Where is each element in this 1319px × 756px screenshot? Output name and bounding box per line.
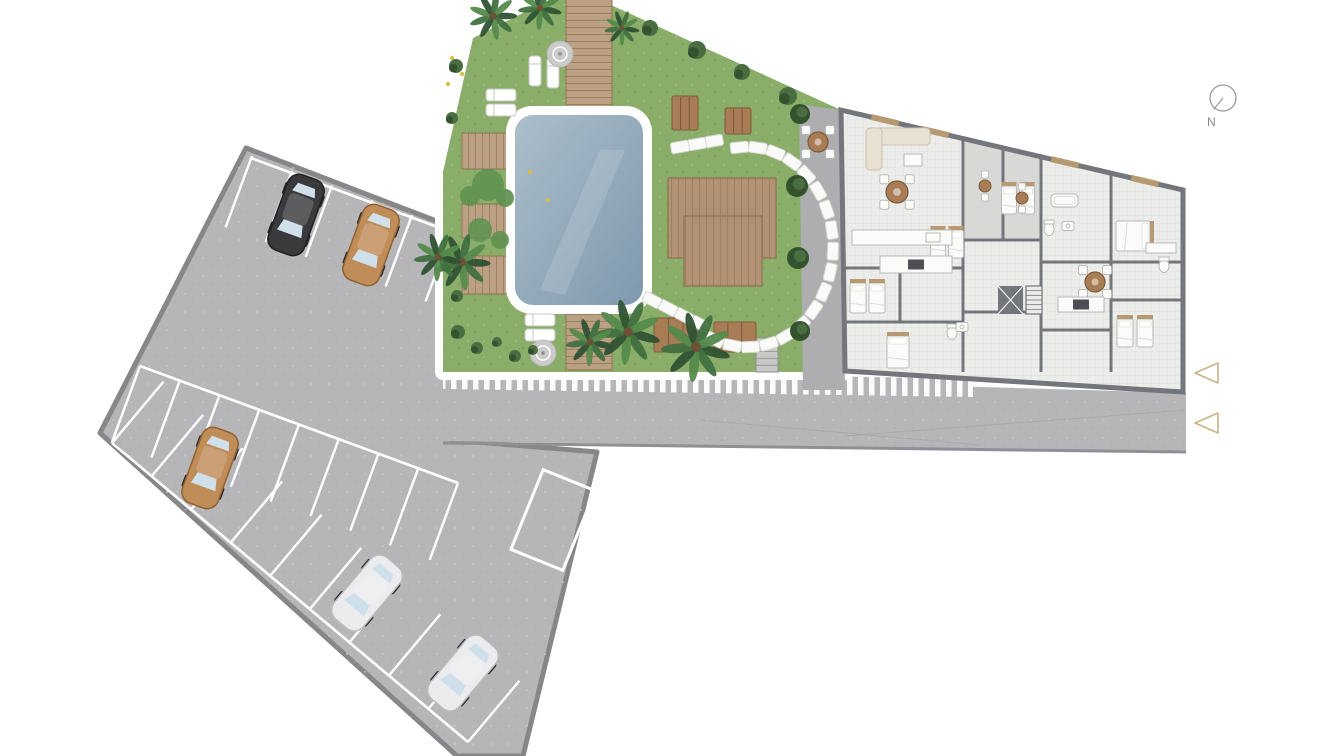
tub-outer: [1051, 194, 1078, 207]
flower-dot: [528, 170, 532, 174]
chair: [826, 125, 835, 134]
bush-shade: [688, 47, 699, 58]
bush-shade: [451, 330, 459, 338]
bed-headboard: [887, 332, 909, 336]
tree-light: [797, 324, 808, 335]
fern-cluster: [460, 186, 480, 206]
bistro-chair: [982, 171, 989, 178]
compass-icon: N: [1207, 85, 1236, 129]
bed: [887, 332, 909, 368]
vanity: [1146, 243, 1176, 253]
chair: [1078, 265, 1087, 274]
bed-headboard: [850, 279, 866, 283]
stepping-stone: [825, 220, 839, 239]
north-label: N: [1207, 115, 1216, 129]
flower-dot: [446, 82, 450, 86]
table-center: [893, 188, 901, 196]
chair: [826, 150, 835, 159]
bathtub: [1051, 194, 1078, 207]
bed: [1002, 182, 1017, 214]
sink-top: [1062, 222, 1074, 231]
kitchen-counter: [880, 256, 952, 273]
flower-dot: [546, 198, 550, 202]
stepping-stone: [730, 141, 749, 154]
kitchen-counter: [1058, 297, 1104, 312]
bed-headboard: [949, 226, 964, 230]
compass-needle: [1214, 98, 1224, 110]
sink: [956, 323, 968, 332]
flower-dot: [460, 72, 464, 76]
tree-light: [794, 250, 806, 262]
chair: [801, 150, 810, 159]
bed-headboard: [1137, 315, 1153, 319]
stepping-stone: [741, 341, 760, 353]
palm-trunk: [586, 338, 593, 345]
bistro-table: [979, 180, 991, 192]
cooktop: [1073, 300, 1089, 310]
bed: [869, 279, 885, 313]
swimming-pool: [506, 106, 652, 314]
bush-shade: [446, 116, 453, 123]
picnic-table: [725, 108, 751, 134]
bush-shade: [779, 93, 790, 104]
bush-shade: [451, 294, 458, 301]
palm-trunk: [434, 253, 441, 260]
chair: [905, 200, 914, 209]
lounger-bed: [486, 89, 516, 101]
apartment-building: [841, 110, 1183, 392]
direction-arrow-icon: [1195, 413, 1218, 433]
parasol-pole: [541, 351, 545, 355]
bed-pillow: [1119, 321, 1131, 327]
direction-arrow-icon: [1195, 363, 1218, 383]
palm-trunk: [489, 12, 496, 19]
bed-headboard: [1117, 315, 1133, 319]
parasol-pole: [558, 52, 562, 56]
bush-shade: [642, 26, 652, 36]
stepping-stone: [827, 242, 839, 260]
lounger-bed: [486, 104, 516, 116]
chair: [801, 125, 810, 134]
bed-pillow: [852, 285, 864, 291]
toilet-tank: [1159, 257, 1169, 261]
palm-trunk: [623, 327, 633, 337]
bed: [850, 279, 866, 313]
tree-light: [793, 178, 805, 190]
bush-shade: [509, 354, 516, 361]
sun-lounger: [486, 89, 516, 101]
sun-lounger: [525, 314, 555, 326]
palm-trunk: [691, 342, 701, 352]
lounger-bed: [529, 56, 541, 86]
sofa-arm: [866, 128, 882, 170]
bed-headboard: [931, 226, 946, 230]
bed-headboard: [869, 279, 885, 283]
counter-top: [852, 230, 952, 245]
picnic-top: [672, 96, 698, 130]
sink-top: [956, 323, 968, 332]
bistro-chair: [1019, 206, 1026, 213]
lounger-bed: [525, 314, 555, 326]
table-center: [1092, 279, 1099, 286]
picnic-top: [725, 108, 751, 134]
pool-garden: [443, 0, 845, 390]
palm-trunk: [619, 25, 624, 30]
parasol-icon: [547, 41, 573, 67]
kitchen-counter: [852, 230, 952, 245]
bed-pillow: [1004, 188, 1015, 194]
sun-lounger: [525, 329, 555, 341]
fern-cluster: [496, 189, 514, 207]
site-plan: N: [0, 0, 1319, 756]
toilet: [1159, 257, 1169, 273]
bed-pillow: [889, 338, 907, 344]
sink: [1062, 222, 1074, 231]
bistro-chair: [1019, 183, 1026, 190]
bush-shade: [449, 64, 457, 72]
table-center: [815, 139, 822, 146]
wood-platform: [684, 216, 762, 286]
bush-shade: [528, 349, 534, 355]
lounger-bed: [525, 329, 555, 341]
bush-shade: [734, 70, 744, 80]
bed-headboard: [1002, 182, 1017, 186]
stepping-stone: [748, 141, 767, 154]
toilet-tank: [1044, 220, 1054, 224]
toilet: [1044, 220, 1054, 236]
chair: [880, 175, 889, 184]
sun-lounger: [486, 104, 516, 116]
site-plan-canvas: N: [0, 0, 1319, 756]
sun-lounger: [529, 56, 541, 86]
bed: [1137, 315, 1153, 347]
bistro-table: [1016, 192, 1028, 204]
coffee-table: [904, 154, 922, 166]
bed-pillow: [1139, 321, 1151, 327]
fern-cluster: [468, 218, 492, 242]
picnic-table: [672, 96, 698, 130]
chair: [880, 200, 889, 209]
stairwell: [1026, 286, 1042, 314]
fern-cluster: [491, 231, 509, 249]
elevator-core: [998, 286, 1023, 314]
bed-pillow: [871, 285, 883, 291]
bush-shade: [471, 346, 478, 353]
cooktop: [908, 260, 924, 270]
chair: [905, 175, 914, 184]
palm-trunk: [537, 5, 543, 11]
tree-light: [797, 107, 808, 118]
bed: [1117, 315, 1133, 347]
bush-shade: [492, 341, 498, 347]
bistro-chair: [982, 194, 989, 201]
chair: [1103, 265, 1112, 274]
